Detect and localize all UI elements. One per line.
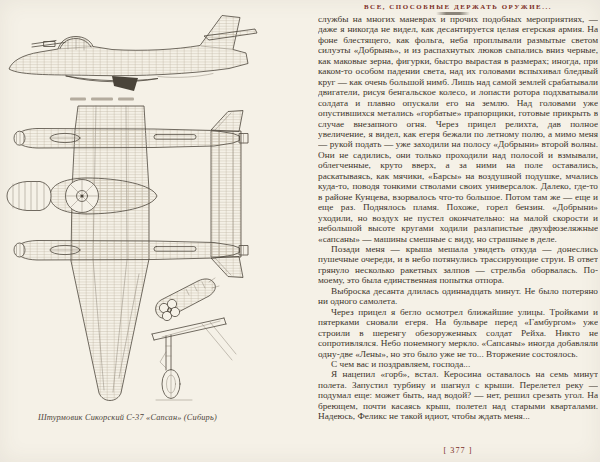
running-header: ВСЕ, СПОСОБНЫЕ ДЕРЖАТЬ ОРУЖИЕ...	[318, 3, 598, 10]
paragraph: Позади меня — крыша мешала увидеть откуд…	[318, 244, 598, 286]
paragraph: Я нацепил «горб», встал. Керосина остава…	[318, 369, 598, 421]
paragraph: С чем вас и поздравляем, господа...	[318, 359, 598, 369]
body-text-column: службы на многих маневрах и прочих подоб…	[318, 14, 598, 450]
aircraft-figure	[6, 12, 302, 412]
paragraph: Выброска десанта длилась одиннадцать мин…	[318, 286, 598, 307]
figure-caption: Штурмовик Сикорский С-37 «Сапсан» (Сибир…	[38, 413, 288, 422]
book-page: ВСЕ, СПОСОБНЫЕ ДЕРЖАТЬ ОРУЖИЕ...	[0, 0, 600, 462]
page-number: [ 377 ]	[318, 446, 598, 455]
aircraft-three-view-drawing	[6, 12, 302, 412]
paragraph: службы на многих маневрах и прочих подоб…	[318, 14, 598, 244]
paragraph: Через прицел я бегло осмотрел ближайшие …	[318, 307, 598, 359]
